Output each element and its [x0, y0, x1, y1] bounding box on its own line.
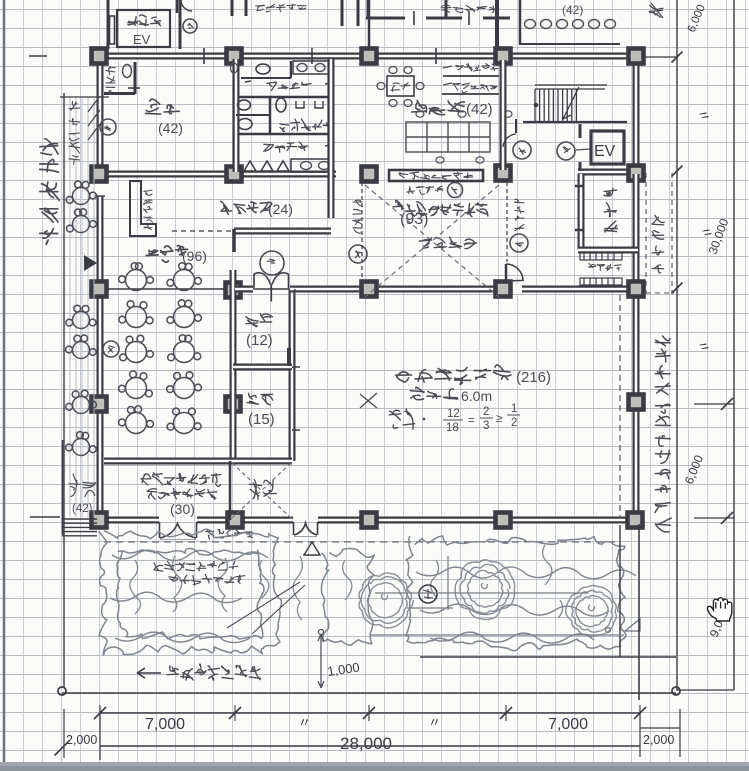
svg-text:〃: 〃: [298, 715, 311, 730]
svg-text:(93): (93): [400, 211, 428, 228]
svg-text:(42): (42): [158, 120, 183, 136]
svg-text:(12): (12): [246, 332, 273, 349]
svg-text:6.0m: 6.0m: [461, 388, 492, 404]
svg-text:2: 2: [483, 406, 489, 418]
svg-text:(96): (96): [182, 248, 207, 264]
svg-text:2,000: 2,000: [66, 733, 97, 747]
svg-text:28,000: 28,000: [340, 734, 392, 753]
svg-text:=: =: [468, 415, 475, 427]
svg-text:1: 1: [511, 403, 517, 415]
svg-text:(24): (24): [268, 201, 293, 217]
svg-text:7,000: 7,000: [145, 716, 185, 733]
svg-text:(42): (42): [466, 101, 493, 118]
svg-text:7,000: 7,000: [548, 716, 588, 733]
svg-text:18: 18: [446, 422, 459, 434]
svg-text:≥: ≥: [496, 413, 502, 425]
svg-text:EV: EV: [594, 143, 616, 160]
svg-text:(42): (42): [562, 3, 583, 17]
svg-text:12: 12: [447, 408, 460, 420]
svg-text:2: 2: [511, 417, 517, 429]
svg-text:(30): (30): [170, 501, 195, 517]
svg-text:2,000: 2,000: [643, 733, 674, 747]
svg-text:(15): (15): [248, 411, 275, 428]
svg-text:EV: EV: [133, 32, 151, 47]
svg-text:3: 3: [483, 420, 489, 432]
svg-text:(42): (42): [72, 503, 93, 515]
svg-text:〃: 〃: [428, 715, 441, 730]
svg-text:(216): (216): [516, 369, 551, 386]
